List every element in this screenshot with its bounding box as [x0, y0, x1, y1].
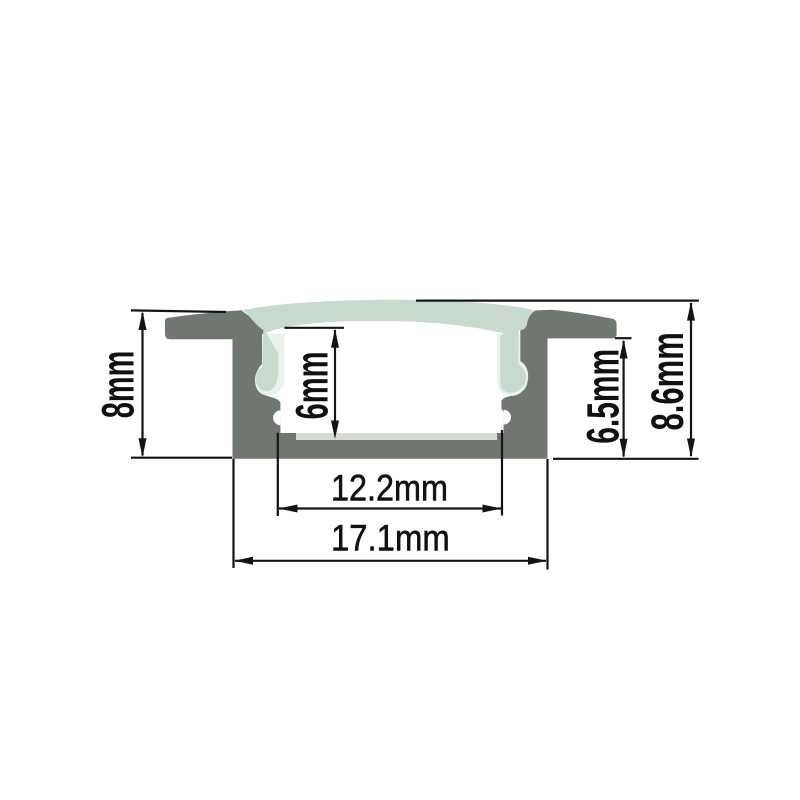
svg-text:6mm: 6mm [287, 352, 338, 420]
svg-text:8mm: 8mm [93, 351, 144, 419]
svg-text:12.2mm: 12.2mm [331, 467, 448, 509]
svg-text:17.1mm: 17.1mm [331, 517, 450, 559]
svg-text:6.5mm: 6.5mm [577, 349, 628, 444]
svg-text:8.6mm: 8.6mm [642, 332, 693, 430]
